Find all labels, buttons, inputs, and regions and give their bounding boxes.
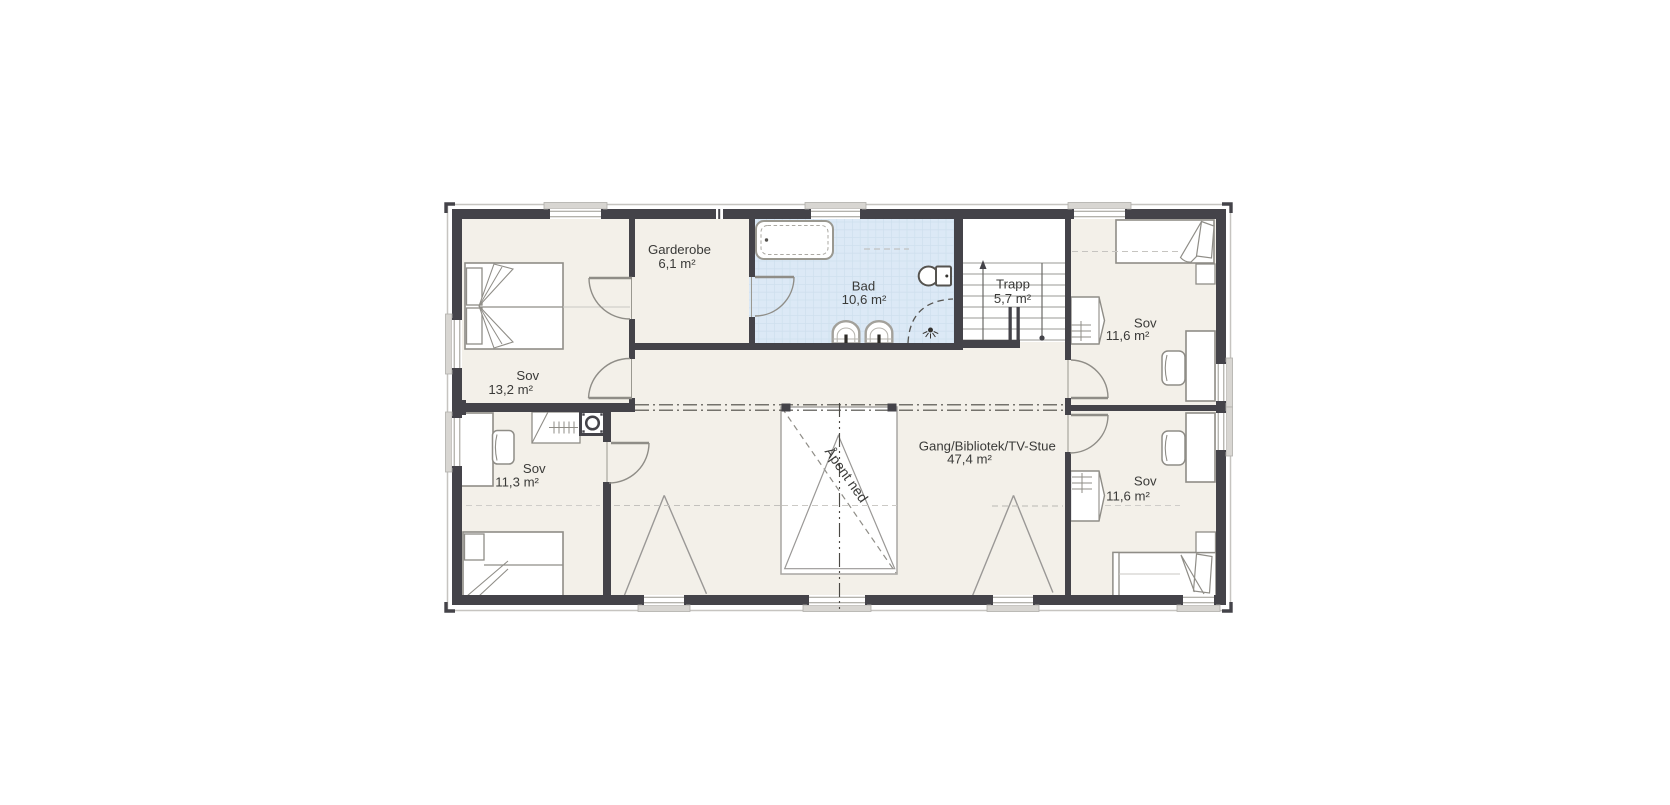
svg-text:11,6 m²: 11,6 m² [1106, 488, 1150, 503]
svg-text:Trapp: Trapp [996, 276, 1030, 291]
svg-text:Sov: Sov [516, 368, 539, 383]
svg-text:11,6 m²: 11,6 m² [1106, 328, 1150, 343]
svg-text:5,7 m²: 5,7 m² [994, 291, 1032, 306]
svg-text:13,2 m²: 13,2 m² [488, 382, 533, 397]
svg-text:11,3 m²: 11,3 m² [495, 474, 539, 489]
svg-text:47,4 m²: 47,4 m² [947, 452, 992, 467]
svg-text:10,6 m²: 10,6 m² [842, 292, 887, 307]
svg-text:Sov: Sov [1134, 474, 1157, 489]
svg-text:6,1 m²: 6,1 m² [658, 256, 696, 271]
svg-text:Garderobe: Garderobe [648, 242, 711, 257]
